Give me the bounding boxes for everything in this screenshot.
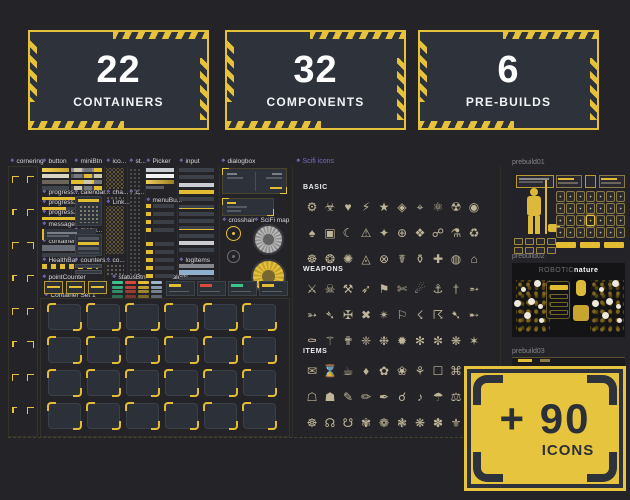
shears-icon: ✄ [393, 276, 411, 302]
prebuild01-item-slot: ✦ [606, 215, 615, 226]
container-slot [204, 370, 237, 396]
component-icon: ❖ [106, 258, 110, 263]
target-icon: ⌖ [411, 194, 429, 220]
menu-button-bullet [146, 242, 153, 246]
button-sample [42, 186, 69, 190]
decor [227, 173, 237, 175]
component-icon: ❖ [74, 258, 78, 263]
artifact-key-icon: ⌘ [447, 358, 465, 384]
container-slot [165, 337, 198, 363]
prebuild01-item-slot: ✦ [616, 215, 625, 226]
input-field-sample [179, 234, 214, 238]
ascending-node-icon: ☊ [321, 410, 339, 436]
prebuild01-item-slot: ✦ [566, 227, 575, 238]
mini-button-sample [84, 174, 92, 178]
log-item-sample [179, 270, 214, 275]
alert-sample [259, 281, 288, 296]
mini-button-sample [84, 186, 92, 190]
spear-icon: ➴ [321, 302, 339, 328]
prebuild01-item-slot: ✦ [566, 191, 575, 202]
menu-button-row [155, 242, 174, 246]
core-icon: ◉ [465, 194, 483, 220]
container-slot [126, 304, 159, 330]
alembic-icon: ⚗ [447, 220, 465, 246]
container-slot [87, 304, 120, 330]
prebuild01-slot [525, 238, 534, 245]
log-item-sample [179, 264, 214, 268]
prebuild01-item-slot: ✦ [566, 215, 575, 226]
picker-sample [146, 180, 174, 184]
hazard-stripes [28, 121, 124, 130]
comet-icon: ☄ [411, 276, 429, 302]
picker-sample [146, 174, 174, 178]
prebuild02-title-strong: nature [574, 267, 598, 274]
prebuild02-label: prebuild02 [512, 253, 545, 260]
container-slot [87, 370, 120, 396]
component-icon: ❖ [146, 159, 150, 164]
decor [601, 182, 621, 184]
status-button-sample [112, 286, 123, 289]
prebuild01-button [556, 242, 576, 248]
prebuild01-button [580, 242, 600, 248]
prebuild01-item-slot: ✦ [576, 227, 585, 238]
dialog-box-sample [222, 168, 287, 194]
input-field-sample [179, 241, 214, 245]
spark-icon: ✦ [375, 220, 393, 246]
sprig-icon: ⚘ [411, 358, 429, 384]
component-label-progress2: ❖progress... [42, 199, 79, 206]
menu-button-bullet [146, 212, 151, 216]
component-icon: ❖ [10, 159, 14, 164]
corner-bracket-sample [27, 308, 34, 315]
corner-bracket-sample [12, 242, 19, 249]
container-slot [165, 403, 198, 429]
stat-value: 6 [497, 51, 519, 89]
descending-node-icon: ☋ [339, 410, 357, 436]
component-label-picker: ❖Picker [146, 158, 171, 165]
hazard-stripes [225, 121, 321, 130]
flower-icon: ✿ [375, 358, 393, 384]
decor [558, 178, 574, 180]
mini-button-sample [84, 180, 92, 184]
prebuild01-slot [536, 238, 545, 245]
container-slot [48, 370, 81, 396]
scroll-letter-icon: ✉ [303, 358, 321, 384]
decor [78, 252, 99, 254]
status-button-sample [138, 286, 149, 289]
hourglass-icon: ⌛ [321, 358, 339, 384]
component-label-scifimap: ❖SciFi map [254, 217, 289, 224]
component-icon: ❖ [146, 198, 150, 203]
container-slot [126, 337, 159, 363]
container-slot [165, 304, 198, 330]
menu-button-bullet [146, 228, 151, 232]
container-slot [204, 304, 237, 330]
input-field-sample [179, 197, 214, 201]
decor [227, 210, 241, 212]
star-icon: ★ [375, 194, 393, 220]
alert-header-bar [262, 284, 274, 287]
decor [78, 242, 99, 245]
component-icon: ❖ [129, 159, 133, 164]
component-label-co: ❖co... [106, 257, 125, 264]
container-slot [204, 337, 237, 363]
menu-button-row [153, 228, 174, 232]
stat-label: COMPONENTS [266, 95, 364, 109]
shrine-piece-icon: ☖ [303, 384, 321, 410]
input-field-sample [179, 226, 214, 230]
menu-button-row [155, 274, 174, 278]
hazard-stripes [310, 30, 406, 39]
menu-button-row [153, 220, 174, 224]
prebuild01-item-slot: ✦ [616, 227, 625, 238]
corner-bracket-sample [27, 209, 34, 216]
log-item-sample [179, 277, 214, 280]
component-icon: ❖ [74, 190, 78, 195]
container-slot [126, 370, 159, 396]
crossed-swords-icon: ⚔ [303, 276, 321, 302]
menu-button-row [155, 250, 174, 254]
corner-bracket-sample [12, 275, 17, 281]
alert-sample [166, 281, 195, 296]
prebuild01-item-slot: ✦ [566, 203, 575, 214]
link-node-icon: ☌ [393, 384, 411, 410]
input-field-sample [179, 168, 214, 172]
prebuild01-item-slot: ✦ [596, 215, 605, 226]
status-button-sample [112, 290, 123, 293]
icon-group-items: ITEMS✉⌛☕♦✿❀⚘☐⌘♨☖☗✎✏✒☌♪☂⚖⚗☸☊☋✾❁❃❋✽⚜☯ [303, 348, 485, 436]
component-icon: ❖ [42, 200, 46, 205]
component-icon: ❖ [42, 190, 46, 195]
component-label-healthbar: ❖HealthBar [42, 257, 77, 264]
corner-bracket-sample [27, 242, 34, 249]
status-button-sample [151, 295, 162, 298]
prebuild01-button [604, 242, 624, 248]
corner-sample-row [12, 407, 34, 414]
menu-button-bullet [146, 204, 151, 208]
decor [78, 237, 99, 240]
mini-button-sample [94, 168, 102, 172]
decor [558, 182, 578, 184]
asset-pack-showcase: 22 CONTAINERS 32 COMPONENTS 6 PRE-BUILDS… [0, 0, 630, 500]
icon-group-title: BASIC [303, 184, 485, 191]
corner-sample-row [12, 308, 34, 315]
atom-icon: ⚛ [429, 194, 447, 220]
component-label-dialogbox: ❖dialogbox [221, 158, 255, 165]
cluster-icon: ❋ [411, 410, 429, 436]
status-button-sample [138, 290, 149, 293]
decor [47, 235, 69, 237]
component-icon: ❖ [221, 159, 225, 164]
alert-header-bar [169, 284, 181, 287]
status-button-sample [138, 295, 149, 298]
menu-button-row [153, 212, 174, 216]
corner-sample-row [12, 242, 34, 249]
divider [292, 166, 293, 437]
prebuild01-emblem [585, 175, 596, 188]
stat-card-components: 32 COMPONENTS [225, 30, 406, 130]
quill-icon: ✒ [375, 384, 393, 410]
corner-sample-row [12, 341, 34, 348]
prebuild01-slot [514, 238, 523, 245]
container-slot [48, 337, 81, 363]
corner-sample-row [12, 374, 34, 381]
flower-art [528, 298, 535, 305]
token-icon: ☗ [321, 384, 339, 410]
decor [47, 286, 60, 288]
hazard-stripes [397, 58, 406, 120]
status-button-sample [151, 290, 162, 293]
co-sample [106, 264, 124, 276]
corner-bracket-sample [12, 341, 17, 347]
leaf-star-icon: ✽ [429, 410, 447, 436]
plus-orb-icon: ⊕ [393, 220, 411, 246]
input-field-sample [179, 190, 214, 194]
corner-bracket [587, 375, 617, 405]
button-sample [42, 168, 69, 172]
decor [518, 359, 532, 362]
corner-sample-row [12, 176, 34, 183]
corner-bracket-sample [27, 176, 34, 183]
mini-button-sample [94, 174, 102, 178]
crystal-icon: ❖ [411, 220, 429, 246]
tracer-round-icon: ➵ [465, 276, 483, 302]
spade-icon: ♠ [303, 220, 321, 246]
blossom-icon: ✾ [357, 410, 375, 436]
container-slot [204, 403, 237, 429]
mini-button-sample [94, 180, 102, 184]
prebuild01-item-slot: ✦ [586, 227, 595, 238]
corner-bracket [473, 452, 503, 482]
mini-button-sample [84, 168, 92, 172]
decor [270, 187, 282, 189]
prebuild01-item-slot: ✦ [586, 191, 595, 202]
mini-button-sample [74, 186, 82, 190]
prebuild01-item-slot: ✦ [556, 203, 565, 214]
pencil-icon: ✏ [357, 384, 375, 410]
corner-bracket-sample [12, 308, 19, 315]
alert-sample [228, 281, 257, 296]
plus-card-label: ICONS [496, 442, 595, 459]
petal-ring-icon: ❁ [375, 410, 393, 436]
alert-header-bar [231, 284, 243, 287]
prebuild01-item-slot: ✦ [596, 227, 605, 238]
bolt-shot-icon: ➸ [465, 302, 483, 328]
dialog-box-sample [222, 198, 274, 216]
gem-icon: ◈ [393, 194, 411, 220]
decor [91, 286, 104, 288]
collage-bottom-edge [8, 437, 488, 438]
component-label-link: ❖Link... [106, 199, 130, 206]
container-slot [243, 403, 276, 429]
input-field-sample [179, 183, 214, 187]
component-label-calendar: ❖calendar... [74, 189, 110, 196]
icons-panel-title-text: Scifi icons [302, 158, 334, 165]
hazard-stripes [113, 30, 209, 39]
anchor-hook-icon: ⚓ [429, 276, 447, 302]
decor [272, 173, 282, 175]
stat-label: CONTAINERS [73, 95, 163, 109]
crate-icon: ☐ [429, 358, 447, 384]
hazard-stripes [200, 58, 209, 120]
input-field-sample [179, 212, 214, 216]
status-button-sample [125, 281, 136, 284]
mini-button-sample [94, 186, 102, 190]
prebuild01-item-slot: ✦ [576, 215, 585, 226]
ration-cup-icon: ☕ [339, 358, 357, 384]
corner-bracket-sample [27, 341, 34, 348]
component-icon: ❖ [179, 159, 183, 164]
corner-bracket-sample [27, 374, 34, 381]
input-field-sample [179, 219, 214, 223]
icon-grid: ✉⌛☕♦✿❀⚘☐⌘♨☖☗✎✏✒☌♪☂⚖⚗☸☊☋✾❁❃❋✽⚜☯ [303, 358, 485, 436]
prebuild01-item-slot: ✦ [606, 203, 615, 214]
component-icon: ❖ [42, 210, 46, 215]
prebuild01-item-slot: ✦ [596, 203, 605, 214]
prebuild01-item-slot: ✦ [576, 203, 585, 214]
container-slot [165, 370, 198, 396]
prebuild01-item-slot: ✦ [586, 215, 595, 226]
icon-group-weapons: WEAPONS⚔☠⚒➶⚑✄☄⚓†➵➳➴✠✖✴⚐☇☈➷➸⚰⚚✟❈❉✹✻✼❋✶ [303, 266, 485, 354]
corner-sample-row [12, 275, 34, 282]
container-slot [87, 337, 120, 363]
corner-bracket-sample [27, 275, 34, 282]
status-button-sample [125, 286, 136, 289]
component-label-progress3: ❖progress... [42, 209, 79, 216]
channel-sample [106, 196, 124, 199]
container-slot [48, 403, 81, 429]
status-button-sample [112, 295, 123, 298]
component-label-crosshair: ❖crosshair [222, 217, 255, 224]
mini-button-sample [74, 174, 82, 178]
prebuild02-menu [546, 281, 570, 319]
prebuild01-item-slot: ✦ [556, 227, 565, 238]
prebuild01-item-slot: ✦ [606, 227, 615, 238]
decor [227, 206, 247, 208]
corner-bracket-sample [12, 407, 17, 413]
skull-icon: ☠ [321, 276, 339, 302]
menu-button-bullet [146, 266, 153, 270]
prebuild01-item-slot: ✦ [606, 191, 615, 202]
container-slot [243, 370, 276, 396]
status-button-sample [151, 281, 162, 284]
component-label-menubu: ❖menuBu... [146, 197, 182, 204]
mini-button-sample [74, 180, 82, 184]
container-slot [243, 337, 276, 363]
alert-sample [197, 281, 226, 296]
component-icon: ❖ [106, 200, 110, 205]
biohazard-icon: ☣ [321, 194, 339, 220]
decor [69, 286, 82, 288]
st-sample [129, 168, 142, 276]
gear-icon: ⚙ [303, 194, 321, 220]
stat-card-prebuilds: 6 PRE-BUILDS [418, 30, 599, 130]
component-label-cha: ❖cha... [106, 189, 128, 196]
recycle-icon: ♻ [465, 220, 483, 246]
counter-sample [75, 264, 102, 268]
component-label-button: ❖button [42, 158, 67, 165]
heart-icon: ♥ [339, 194, 357, 220]
container-slot [126, 403, 159, 429]
scales-icon: ⚖ [447, 384, 465, 410]
component-icon: ❖ [74, 159, 78, 164]
prebuild01-item-slot: ✦ [586, 203, 595, 214]
status-button-sample [151, 286, 162, 289]
corner-bracket-sample [12, 176, 19, 183]
component-label-pointcounter: ❖pointCounter [42, 274, 86, 281]
decor [601, 178, 617, 180]
umbrella-icon: ☂ [429, 384, 447, 410]
decor [266, 177, 282, 179]
component-icon: ❖ [106, 159, 110, 164]
prebuild02-title-muted: ROBOTIC [539, 267, 574, 274]
foliage-art [590, 280, 624, 332]
resonator-icon: ♪ [411, 384, 429, 410]
component-icon: ❖ [42, 159, 46, 164]
plus-ninety-icons-card: + 90 ICONS [467, 369, 623, 488]
medal-flower-icon: ❃ [393, 410, 411, 436]
menu-button-bullet [146, 258, 153, 262]
status-button-sample [138, 281, 149, 284]
flower-art [606, 298, 613, 305]
corner-bracket-sample [12, 374, 19, 381]
hazard-stripes [225, 40, 234, 102]
moon-icon: ☾ [339, 220, 357, 246]
prebuild02-character [571, 276, 591, 322]
icon-set-sample [106, 168, 124, 189]
arrow-volley-icon: ➶ [357, 276, 375, 302]
status-button-sample [125, 290, 136, 293]
prebuild01-slot [547, 238, 556, 245]
flag-icon: ⚐ [393, 302, 411, 328]
container-slot [87, 403, 120, 429]
component-icon: ❖ [296, 159, 300, 164]
hazard-stripes [418, 40, 427, 102]
crosshair-sample [227, 250, 240, 263]
blast-icon: ✴ [375, 302, 393, 328]
component-label-ico: ❖ico... [106, 158, 126, 165]
component-label-minibtn: ❖miniBtn [74, 158, 102, 165]
prebuild01-item-slot: ✦ [616, 203, 625, 214]
bloom-icon: ❀ [393, 358, 411, 384]
decor [227, 202, 236, 204]
status-button-sample [112, 281, 123, 284]
decor [540, 359, 550, 362]
picker-sample [146, 168, 174, 172]
icon-group-title: ITEMS [303, 348, 485, 355]
pen-icon: ✎ [339, 384, 357, 410]
divider [219, 166, 220, 296]
prebuild02-title: ROBOTICnature [512, 267, 625, 274]
hazard-stripes [418, 121, 514, 130]
calendar-sample [75, 196, 102, 226]
icon-group-title: WEAPONS [303, 266, 485, 273]
menu-button-row [155, 266, 174, 270]
war-hammers-icon: ⚒ [339, 276, 357, 302]
prebuild01-inventory-grid: ✦✦✦✦✦✦✦✦✦✦✦✦✦✦✦✦✦✦✦✦✦✦✦✦✦✦✦✦ [556, 191, 625, 238]
decor [227, 177, 243, 179]
decor [47, 232, 77, 234]
prebuild03-label: prebuild03 [512, 348, 545, 355]
prebuild01-item-slot: ✦ [556, 215, 565, 226]
link-sample [106, 206, 124, 254]
orbit-icon: ☍ [429, 220, 447, 246]
blade-cross-icon: ✠ [339, 302, 357, 328]
component-label-st: ❖st... [129, 158, 146, 165]
corner-bracket [473, 375, 503, 405]
prebuild01-item-slot: ✦ [596, 191, 605, 202]
component-icon: ❖ [222, 218, 226, 223]
